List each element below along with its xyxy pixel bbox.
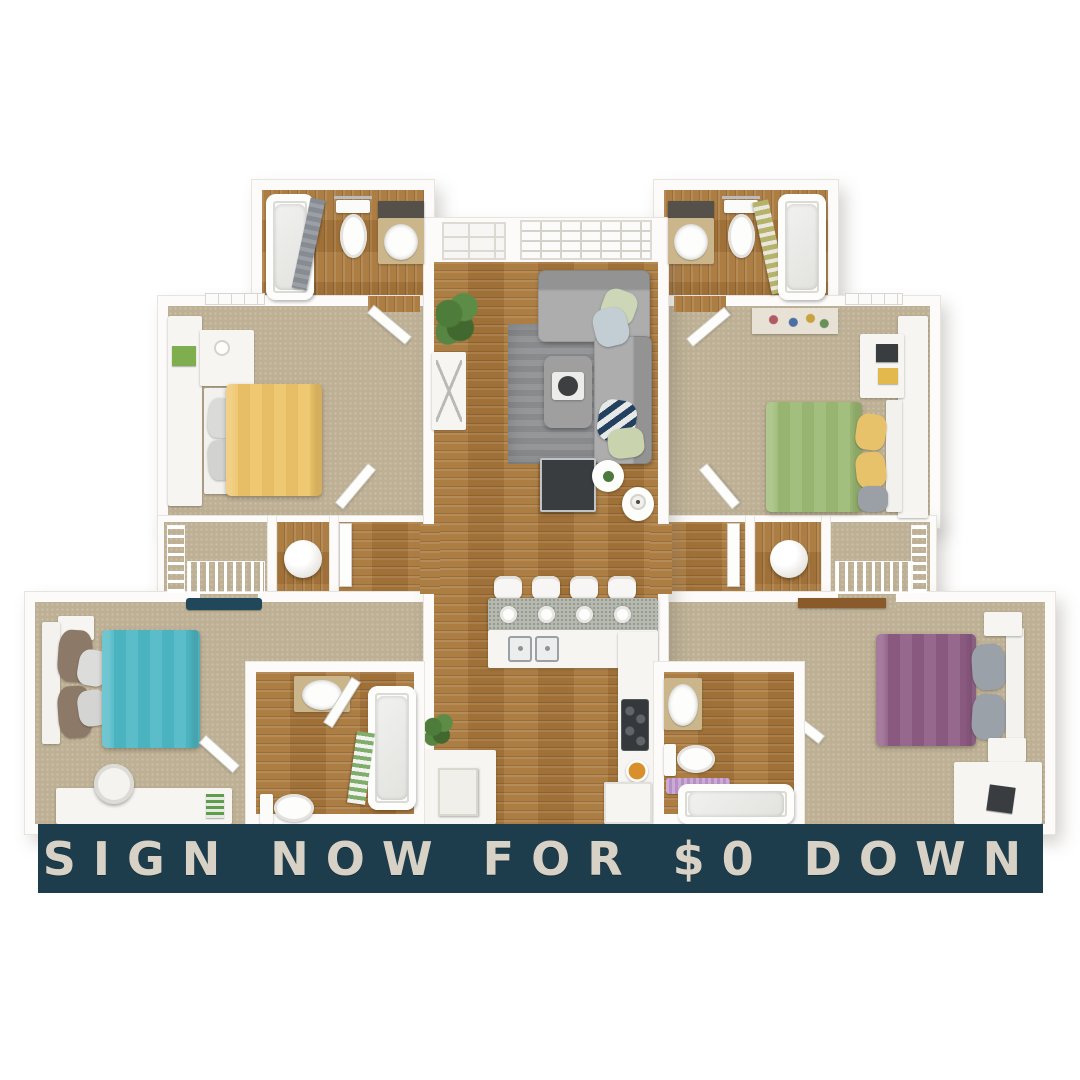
small-plant-icon	[424, 714, 454, 746]
bathtub-basin	[376, 696, 408, 800]
pillow-yellow	[854, 451, 888, 490]
closet-rack	[168, 526, 184, 592]
towel-bar	[722, 196, 760, 199]
pillow-gray	[970, 643, 1007, 691]
door-leaf	[340, 524, 351, 586]
bar-stool	[494, 576, 522, 600]
console-x-legs	[436, 360, 462, 422]
headboard	[1006, 628, 1024, 748]
bar-stool	[532, 576, 560, 600]
faucet	[518, 646, 523, 651]
towel-bar	[334, 196, 372, 199]
pillow-gray	[970, 693, 1007, 741]
dresser-lamp-icon	[214, 340, 230, 356]
wood-shelf	[798, 598, 886, 608]
place-setting	[538, 606, 555, 623]
toilet-tank	[336, 200, 370, 213]
bathtub-basin	[688, 791, 784, 817]
throw-gray	[858, 486, 888, 512]
dresser	[200, 330, 254, 386]
nightstand	[984, 612, 1022, 636]
floor-plan-advert: SIGN NOW FOR $0 DOWN	[0, 0, 1080, 1080]
notebook-green	[206, 794, 224, 818]
headboard	[886, 400, 902, 512]
entry-window	[522, 222, 650, 258]
promo-banner-text: SIGN NOW FOR $0 DOWN	[43, 832, 1038, 886]
headboard	[42, 622, 60, 744]
refrigerator	[604, 782, 652, 824]
vanity-mirror	[668, 201, 714, 218]
nightstand	[988, 738, 1026, 762]
bed-purple	[876, 634, 976, 746]
toilet	[274, 794, 314, 822]
faucet	[545, 646, 550, 651]
fruit-bowl	[626, 760, 648, 782]
floor-plant-icon	[436, 292, 478, 346]
doorway-hall-left	[420, 524, 440, 594]
closet-rack	[836, 562, 912, 592]
place-setting	[500, 606, 517, 623]
bar-stool	[570, 576, 598, 600]
bedroom-window	[206, 294, 264, 304]
bar-stool	[608, 576, 636, 600]
tv-stand	[540, 458, 596, 512]
closet-rack	[188, 562, 264, 592]
bed-teal	[102, 630, 200, 748]
pantry-box	[438, 768, 478, 816]
toilet-tank	[664, 744, 676, 776]
front-door	[444, 224, 504, 258]
desk-pad-yellow	[878, 368, 898, 384]
closet-rack	[912, 526, 926, 592]
desk-chair	[94, 764, 134, 804]
bedroom-window	[846, 294, 902, 304]
promo-banner[interactable]: SIGN NOW FOR $0 DOWN	[38, 824, 1043, 893]
toilet	[677, 745, 715, 773]
desk-pad-green	[172, 346, 196, 366]
laptop-icon	[876, 344, 898, 362]
stove	[622, 700, 648, 750]
sink	[384, 224, 418, 260]
bed-green	[766, 402, 862, 512]
doorway-hall-right	[650, 524, 672, 594]
laptop-icon	[986, 784, 1015, 813]
doorway-bath-upper-right	[674, 296, 726, 312]
sink	[674, 224, 708, 260]
toilet	[728, 214, 755, 258]
desk	[168, 316, 202, 506]
side-table-plant-icon	[603, 471, 614, 482]
toilet-tank	[260, 794, 273, 824]
tray-bowl	[558, 376, 578, 396]
bed-yellow	[226, 384, 322, 496]
water-heater	[284, 540, 322, 578]
sink	[668, 684, 698, 726]
water-heater	[770, 540, 808, 578]
place-setting	[576, 606, 593, 623]
accent-rug	[752, 308, 838, 334]
toilet	[340, 214, 367, 258]
place-setting	[614, 606, 631, 623]
vanity-mirror	[378, 201, 424, 218]
door-leaf	[728, 524, 739, 586]
bathtub-basin	[786, 204, 818, 290]
runner-rug	[186, 598, 262, 610]
lamp-finial	[636, 500, 640, 504]
